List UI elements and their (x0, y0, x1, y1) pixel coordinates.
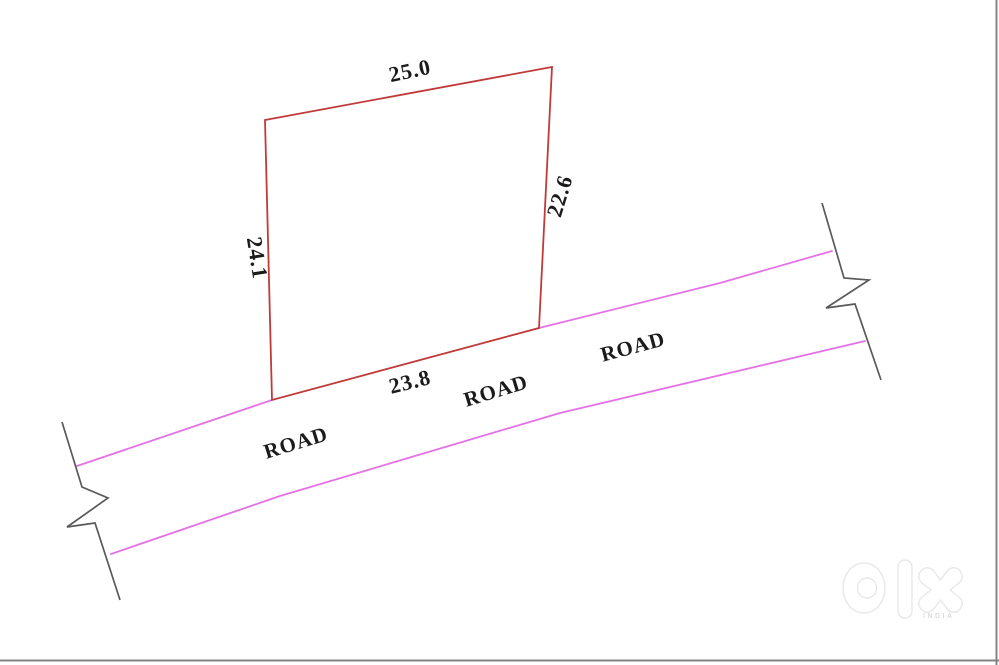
olx-logo (843, 560, 962, 618)
olx-india-text: INDIA (923, 613, 955, 620)
road-break-left-icon (62, 422, 120, 600)
dimension-left-label: 24.1 (243, 235, 271, 280)
road-edge-upper-left (77, 400, 272, 466)
road-edge-lower (111, 341, 865, 554)
olx-o-inner-icon (858, 578, 877, 598)
land-plot-diagram: 25.0 24.1 22.6 23.8 ROAD ROAD ROAD INDIA (0, 0, 999, 665)
diagram-lines (0, 0, 999, 665)
olx-o-outer-icon (843, 563, 885, 613)
road-break-right-icon (822, 203, 881, 380)
olx-l-icon (898, 560, 912, 618)
road-edge-upper-right (539, 251, 832, 328)
olx-x-icon (919, 568, 963, 613)
plot-boundary (265, 67, 552, 400)
